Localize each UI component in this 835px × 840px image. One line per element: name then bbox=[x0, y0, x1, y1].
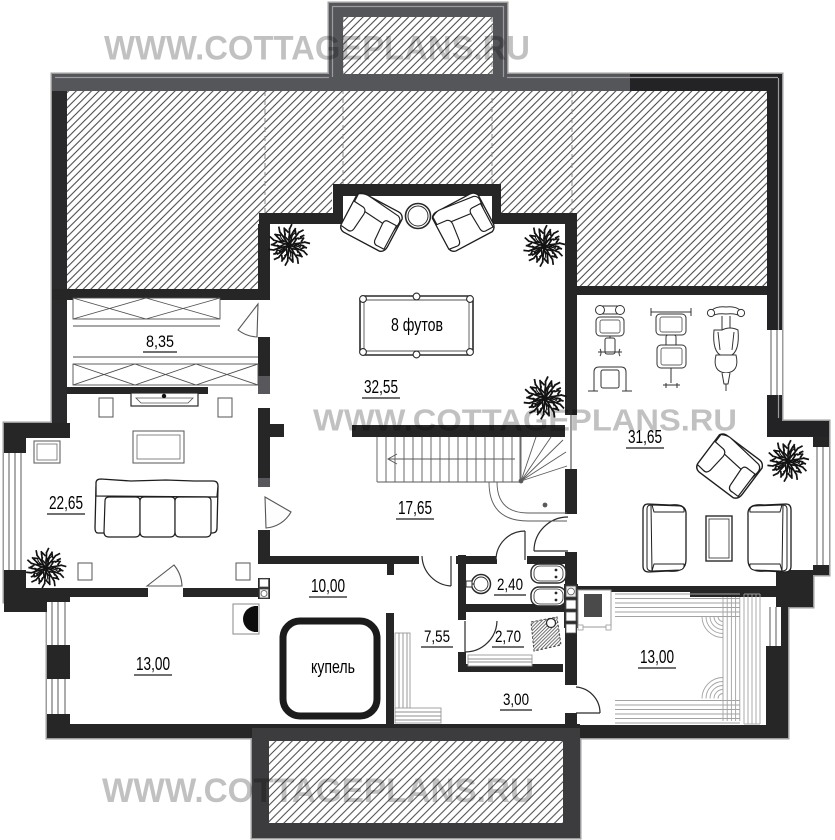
svg-text:8 футов: 8 футов bbox=[391, 315, 443, 335]
svg-text:WWW.COTTAGEPLANS.RU: WWW.COTTAGEPLANS.RU bbox=[313, 403, 737, 438]
svg-text:3,00: 3,00 bbox=[503, 690, 529, 709]
svg-text:2,70: 2,70 bbox=[495, 627, 521, 646]
svg-text:8,35: 8,35 bbox=[146, 332, 174, 351]
svg-text:2,40: 2,40 bbox=[497, 575, 523, 594]
svg-text:10,00: 10,00 bbox=[311, 576, 345, 596]
svg-text:22,65: 22,65 bbox=[49, 493, 83, 513]
svg-text:32,55: 32,55 bbox=[364, 377, 398, 397]
svg-text:17,65: 17,65 bbox=[398, 498, 432, 518]
svg-text:купель: купель bbox=[311, 657, 355, 677]
svg-text:WWW.COTTAGEPLANS.RU: WWW.COTTAGEPLANS.RU bbox=[104, 30, 530, 68]
svg-text:13,00: 13,00 bbox=[136, 654, 170, 674]
svg-text:7,55: 7,55 bbox=[424, 627, 450, 646]
svg-text:WWW.COTTAGEPLANS.RU: WWW.COTTAGEPLANS.RU bbox=[102, 772, 534, 810]
svg-text:13,00: 13,00 bbox=[640, 647, 674, 667]
